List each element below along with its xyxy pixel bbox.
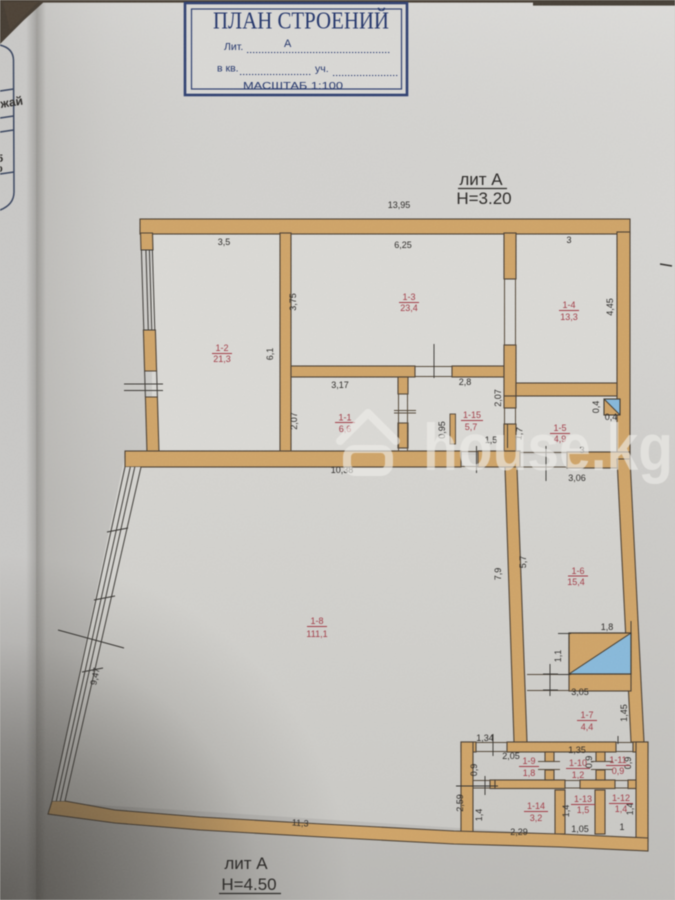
svg-text:1,05: 1,05 (571, 824, 589, 834)
svg-text:0,9: 0,9 (469, 764, 479, 777)
svg-text:4,45: 4,45 (605, 298, 615, 316)
svg-text:1,8: 1,8 (601, 622, 614, 632)
svg-text:0,9: 0,9 (612, 766, 625, 776)
svg-text:13,95: 13,95 (388, 200, 411, 210)
svg-text:6,25: 6,25 (394, 240, 412, 250)
svg-text:лит А: лит А (224, 854, 268, 873)
svg-text:1,8: 1,8 (523, 768, 536, 778)
svg-text:3,17: 3,17 (331, 380, 349, 390)
svg-text:111,1: 111,1 (306, 629, 327, 639)
svg-text:3: 3 (566, 235, 571, 245)
svg-text:6,1: 6,1 (265, 348, 275, 361)
svg-text:1-12: 1-12 (612, 793, 630, 803)
svg-text:7,9: 7,9 (493, 568, 503, 581)
svg-text:1,4: 1,4 (615, 804, 628, 814)
svg-text:1: 1 (619, 822, 624, 832)
svg-text:1-13: 1-13 (574, 794, 592, 804)
svg-text:3,05: 3,05 (571, 687, 589, 697)
svg-text:1-10: 1-10 (569, 758, 587, 768)
svg-text:1-9: 1-9 (522, 756, 535, 766)
svg-text:1,1: 1,1 (553, 650, 563, 663)
svg-text:1,2: 1,2 (572, 770, 585, 780)
svg-text:1-8: 1-8 (310, 616, 323, 626)
svg-text:15,4: 15,4 (567, 577, 585, 587)
svg-text:H=3.20: H=3.20 (456, 189, 511, 208)
svg-text:2,07: 2,07 (493, 389, 503, 407)
svg-text:2,07: 2,07 (289, 412, 299, 430)
svg-text:1-4: 1-4 (562, 300, 575, 310)
svg-text:1-11: 1-11 (609, 755, 626, 765)
svg-text:2,29: 2,29 (510, 827, 528, 837)
svg-text:1,4: 1,4 (474, 809, 484, 822)
svg-text:1,4: 1,4 (561, 805, 571, 818)
svg-text:21,3: 21,3 (213, 354, 231, 364)
svg-text:1-14: 1-14 (527, 801, 545, 811)
svg-text:13,3: 13,3 (560, 312, 578, 322)
svg-text:house.kg: house.kg (423, 410, 673, 484)
svg-text:4,4: 4,4 (581, 722, 594, 732)
svg-text:1-1: 1-1 (338, 413, 351, 423)
svg-text:2,59: 2,59 (455, 794, 465, 812)
svg-text:1-2: 1-2 (215, 343, 228, 353)
svg-text:1,35: 1,35 (568, 745, 586, 755)
svg-text:1-7: 1-7 (580, 710, 593, 720)
svg-text:2,05: 2,05 (502, 751, 520, 761)
svg-text:1,34: 1,34 (476, 733, 494, 743)
svg-text:3,5: 3,5 (218, 237, 231, 247)
svg-text:лит А: лит А (459, 170, 503, 189)
svg-text:11,3: 11,3 (291, 817, 309, 828)
svg-text:1-6: 1-6 (571, 566, 584, 576)
svg-text:23,4: 23,4 (400, 303, 418, 313)
svg-text:1,45: 1,45 (619, 704, 629, 722)
svg-text:2,8: 2,8 (459, 377, 472, 387)
svg-text:H=4.50: H=4.50 (221, 875, 276, 894)
svg-text:1,5: 1,5 (577, 805, 590, 815)
svg-text:5,7: 5,7 (518, 556, 528, 569)
svg-text:3,2: 3,2 (530, 813, 543, 823)
svg-text:1-3: 1-3 (402, 292, 415, 302)
svg-text:3,75: 3,75 (288, 293, 298, 311)
